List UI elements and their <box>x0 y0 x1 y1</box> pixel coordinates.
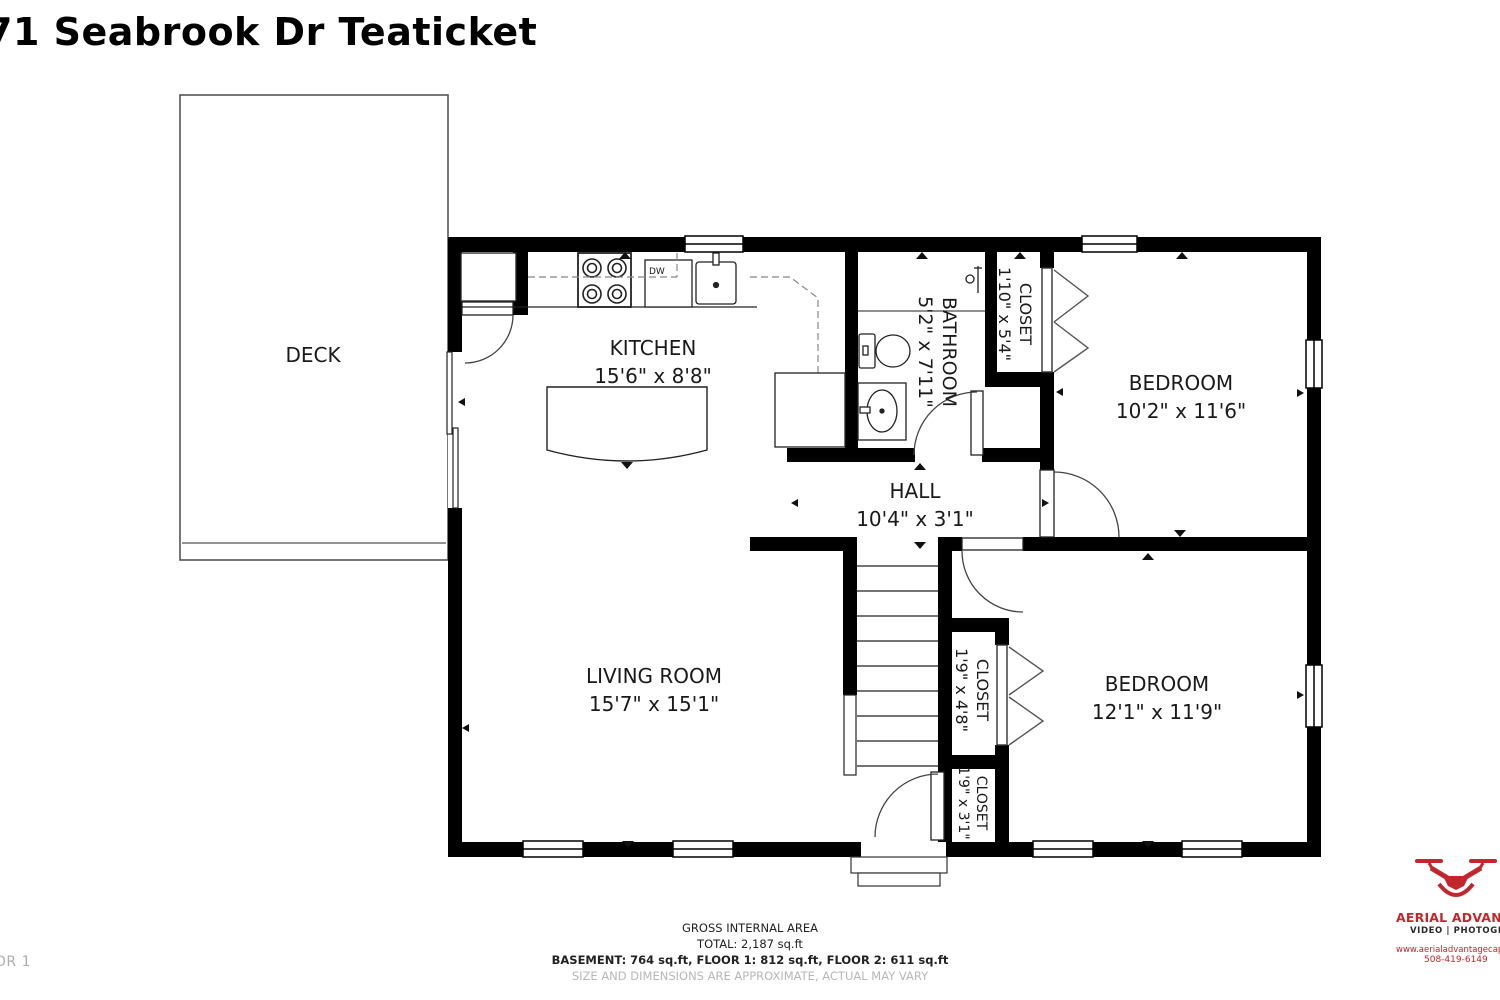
svg-text:15'7" x 15'1": 15'7" x 15'1" <box>589 692 719 716</box>
bathroom-sink-icon <box>858 383 906 440</box>
disclaimer-text: SIZE AND DIMENSIONS ARE APPROXIMATE, ACT… <box>450 968 1050 984</box>
window <box>1033 841 1093 857</box>
company-name: AERIAL ADVANTAGE <box>1396 910 1500 925</box>
corner-cabinet <box>461 253 516 301</box>
room-label-closet-top: CLOSET 1'10" x 5'4" <box>995 267 1035 361</box>
footer-area: GROSS INTERNAL AREA TOTAL: 2,187 sq.ft B… <box>450 920 1050 984</box>
svg-text:BATHROOM: BATHROOM <box>938 297 960 407</box>
room-label-closet-mid: CLOSET 1'9" x 4'8" <box>952 648 992 732</box>
company-tagline: VIDEO | PHOTOGRAPHY <box>1410 926 1500 936</box>
window <box>1182 841 1242 857</box>
svg-text:1'10" x 5'4": 1'10" x 5'4" <box>995 267 1014 361</box>
window <box>1306 665 1322 727</box>
shower-icon <box>966 266 982 293</box>
svg-text:10'2" x 11'6": 10'2" x 11'6" <box>1116 399 1246 423</box>
branding-block: AERIAL ADVANTAGE VIDEO | PHOTOGRAPHY www… <box>1396 856 1500 965</box>
room-label-bedroom-upper: BEDROOM 10'2" x 11'6" <box>1116 371 1246 423</box>
window <box>1306 340 1322 388</box>
entry-stoop <box>851 857 947 886</box>
window <box>523 841 583 857</box>
floor-areas-breakdown: BASEMENT: 764 sq.ft, FLOOR 1: 812 sq.ft,… <box>450 952 1050 968</box>
floor-plan-svg: DW <box>0 0 1500 1000</box>
bifold-door-closet-mid <box>997 645 1043 745</box>
svg-text:1'9" x 3'1": 1'9" x 3'1" <box>955 766 971 839</box>
drone-icon <box>1406 856 1500 906</box>
svg-text:10'4" x 3'1": 10'4" x 3'1" <box>856 507 974 531</box>
svg-text:CLOSET: CLOSET <box>973 776 989 831</box>
window <box>685 236 743 252</box>
room-label-bathroom: BATHROOM 5'2" x 7'11" <box>914 296 960 408</box>
svg-text:CLOSET: CLOSET <box>973 659 992 721</box>
svg-text:1'9" x 4'8": 1'9" x 4'8" <box>952 648 971 732</box>
room-label-living-room: LIVING ROOM 15'7" x 15'1" <box>586 664 722 716</box>
window <box>673 841 733 857</box>
svg-text:5'2" x 7'11": 5'2" x 7'11" <box>914 296 936 408</box>
company-website: www.aerialadvantagecapeco <box>1396 945 1500 955</box>
room-label-deck: DECK <box>285 343 341 367</box>
floor-number-label: FLOOR 1 <box>0 954 31 970</box>
svg-text:HALL: HALL <box>889 479 941 503</box>
svg-text:15'6" x 8'8": 15'6" x 8'8" <box>594 364 712 388</box>
svg-text:BEDROOM: BEDROOM <box>1105 672 1209 696</box>
stairs <box>844 566 938 775</box>
dishwasher-icon: DW <box>645 260 692 307</box>
room-label-closet-lower: CLOSET 1'9" x 3'1" <box>955 766 989 839</box>
gross-internal-area-label: GROSS INTERNAL AREA <box>450 920 1050 936</box>
bifold-door-closet-top <box>1042 268 1088 372</box>
svg-text:BEDROOM: BEDROOM <box>1129 371 1233 395</box>
pantry-cabinet <box>775 373 845 447</box>
svg-text:LIVING ROOM: LIVING ROOM <box>586 664 722 688</box>
door-bedroom-lower <box>962 537 1023 612</box>
dishwasher-label: DW <box>649 267 665 277</box>
deck-outline <box>180 95 448 560</box>
door-front <box>861 772 946 857</box>
room-label-kitchen: KITCHEN 15'6" x 8'8" <box>594 336 712 388</box>
svg-text:KITCHEN: KITCHEN <box>610 336 697 360</box>
toilet-icon <box>859 334 910 368</box>
window <box>1082 236 1137 252</box>
company-phone: 508-419-6149 <box>1424 955 1500 965</box>
door-bedroom-upper <box>1040 470 1119 537</box>
svg-text:CLOSET: CLOSET <box>1016 283 1035 345</box>
svg-text:12'1" x 11'9": 12'1" x 11'9" <box>1092 700 1222 724</box>
room-label-bedroom-lower: BEDROOM 12'1" x 11'9" <box>1092 672 1222 724</box>
floor-plan-page: 71 Seabrook Dr Teaticket <box>0 0 1500 1000</box>
kitchen-sink-icon <box>696 253 736 304</box>
kitchen-island <box>547 387 707 461</box>
room-label-hall: HALL 10'4" x 3'1" <box>856 479 974 531</box>
total-area-value: TOTAL: 2,187 sq.ft <box>450 936 1050 952</box>
stove-icon <box>578 253 631 307</box>
sliding-door <box>447 352 462 508</box>
door-kitchen-deck <box>462 302 513 363</box>
